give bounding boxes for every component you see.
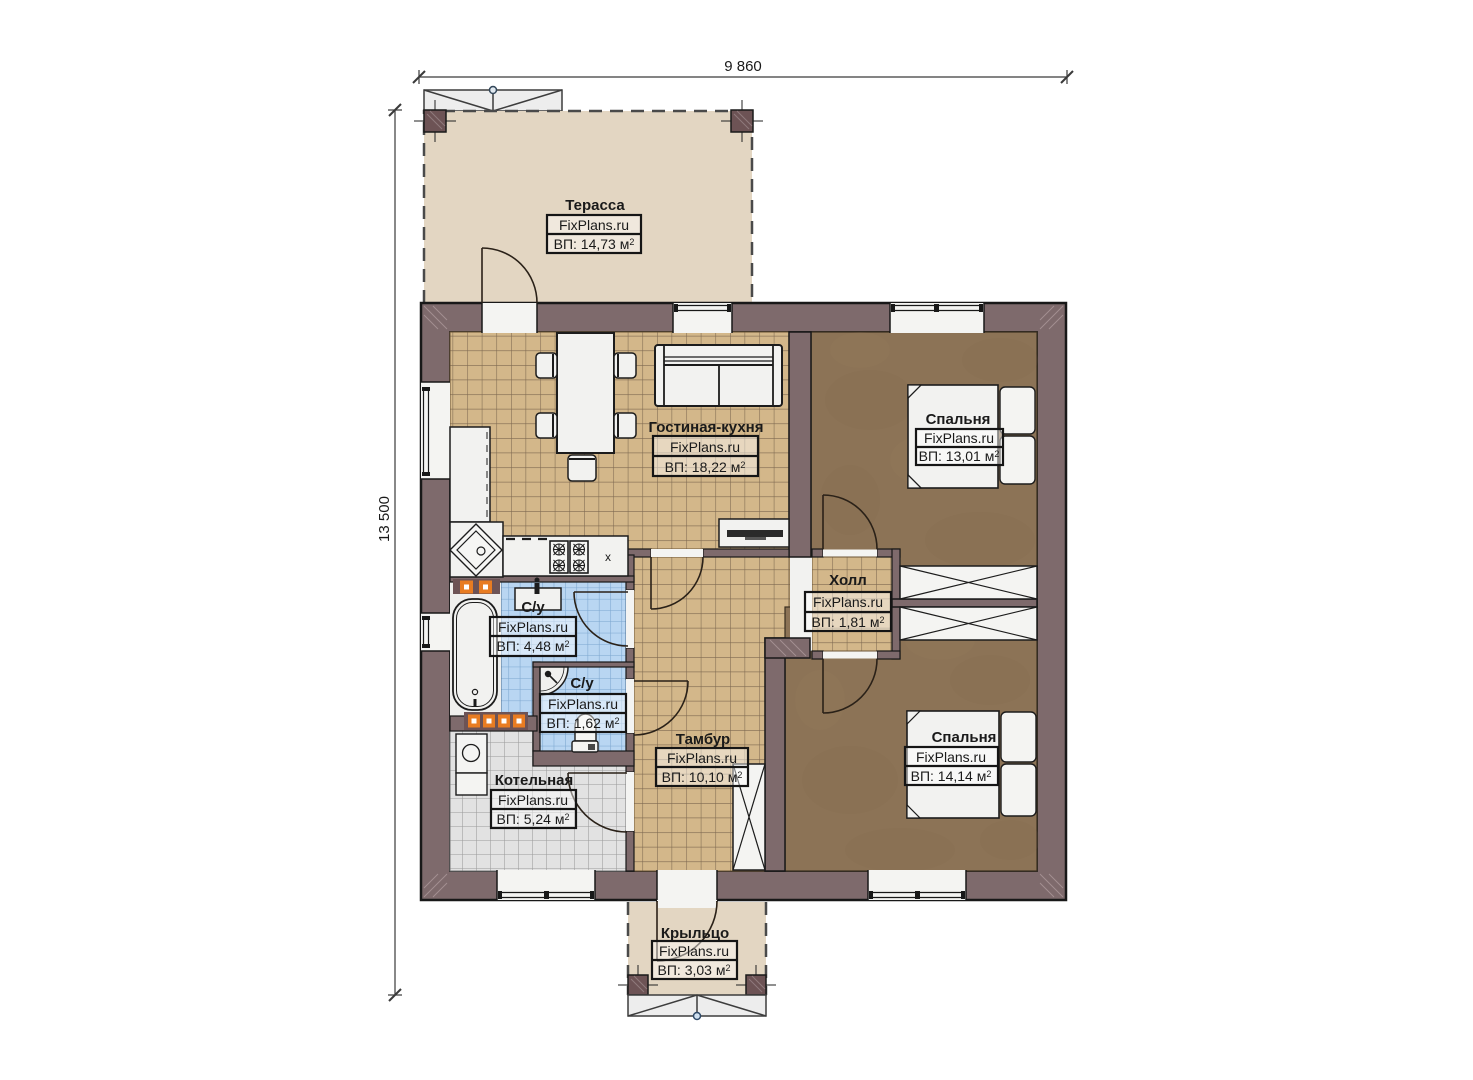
svg-text:FixPlans.ru: FixPlans.ru xyxy=(498,619,568,635)
svg-text:Тамбур: Тамбур xyxy=(676,731,730,748)
svg-text:FixPlans.ru: FixPlans.ru xyxy=(548,696,618,712)
svg-text:Котельная: Котельная xyxy=(495,772,574,789)
svg-text:ВП: 5,24 м2: ВП: 5,24 м2 xyxy=(497,811,570,827)
svg-text:ВП: 1,81 м2: ВП: 1,81 м2 xyxy=(812,614,885,630)
svg-text:С/у: С/у xyxy=(570,675,594,692)
svg-text:ВП: 4,48 м2: ВП: 4,48 м2 xyxy=(497,638,570,654)
svg-text:ВП: 14,14 м2: ВП: 14,14 м2 xyxy=(911,768,992,784)
svg-text:С/у: С/у xyxy=(521,599,545,616)
svg-text:FixPlans.ru: FixPlans.ru xyxy=(498,792,568,808)
svg-text:ВП: 13,01 м2: ВП: 13,01 м2 xyxy=(919,448,1000,464)
svg-text:FixPlans.ru: FixPlans.ru xyxy=(813,594,883,610)
svg-text:ВП: 3,03 м2: ВП: 3,03 м2 xyxy=(658,962,731,978)
svg-text:ВП: 14,73 м2: ВП: 14,73 м2 xyxy=(554,236,635,252)
svg-text:Гостиная-кухня: Гостиная-кухня xyxy=(649,419,764,436)
svg-text:ВП: 10,10 м2: ВП: 10,10 м2 xyxy=(662,769,743,785)
svg-text:FixPlans.ru: FixPlans.ru xyxy=(559,217,629,233)
svg-text:ВП: 18,22 м2: ВП: 18,22 м2 xyxy=(665,459,746,475)
svg-text:FixPlans.ru: FixPlans.ru xyxy=(659,943,729,959)
svg-text:FixPlans.ru: FixPlans.ru xyxy=(924,430,994,446)
svg-text:9 860: 9 860 xyxy=(724,58,762,75)
svg-text:Спальня: Спальня xyxy=(926,411,991,428)
svg-text:FixPlans.ru: FixPlans.ru xyxy=(916,749,986,765)
svg-text:x: x xyxy=(605,550,611,564)
svg-text:ВП: 1,62 м2: ВП: 1,62 м2 xyxy=(547,715,620,731)
svg-text:FixPlans.ru: FixPlans.ru xyxy=(670,439,740,455)
svg-text:Крыльцо: Крыльцо xyxy=(661,925,729,942)
svg-text:Терасса: Терасса xyxy=(565,197,625,214)
svg-text:13 500: 13 500 xyxy=(376,496,393,542)
svg-text:FixPlans.ru: FixPlans.ru xyxy=(667,750,737,766)
svg-text:Спальня: Спальня xyxy=(932,729,997,746)
svg-text:Холл: Холл xyxy=(829,572,867,589)
